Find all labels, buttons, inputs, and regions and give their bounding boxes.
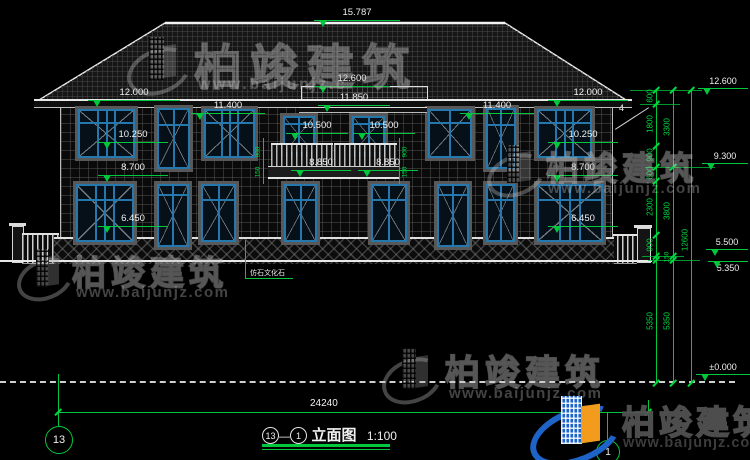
window <box>201 184 236 242</box>
elevation-value: 8.700 <box>571 162 595 173</box>
elevation-value: 15.787 <box>342 7 371 18</box>
window <box>371 184 407 242</box>
elevation-marker: 12.000 <box>548 87 628 101</box>
entry-door <box>437 184 469 247</box>
dim-extension <box>607 412 608 440</box>
elevation-marker: 5.500 <box>706 236 748 250</box>
elevation-drawing-canvas: 15.787 12.600 11.850 12.000 12.000 11.40… <box>0 0 750 460</box>
title-scale: 1:100 <box>367 429 397 443</box>
dim-value: 150 <box>664 252 671 263</box>
dim-chain-line <box>691 90 692 383</box>
dim-value: 5350 <box>646 312 655 330</box>
drawing-title: 13—1 立面图 1:100 <box>262 424 397 445</box>
elevation-value: 12.000 <box>573 87 602 98</box>
title-underline <box>262 444 390 447</box>
dim-value: 900 <box>646 148 655 161</box>
title-underline-thin <box>262 449 390 450</box>
grid-bubble-left: 13 <box>45 426 73 454</box>
callout-leader <box>245 278 293 279</box>
elevation-marker: 8.700 <box>98 162 168 176</box>
title-dash: — <box>279 431 290 443</box>
title-text: 立面图 <box>311 427 356 444</box>
elevation-marker: 8.850 <box>358 157 418 171</box>
elevation-marker: 10.250 <box>98 129 168 143</box>
elevation-marker: 10.500 <box>353 120 415 134</box>
elevation-marker: ±0.000 <box>696 361 750 375</box>
dim-value: 1800 <box>646 115 655 133</box>
window <box>284 184 317 242</box>
overall-dim-value: 24240 <box>310 398 338 409</box>
elevation-marker: 12.600 <box>698 75 748 89</box>
elevation-marker: 8.700 <box>548 162 618 176</box>
elevation-value: 10.250 <box>118 129 147 140</box>
grid-bubble-label: 13 <box>53 434 65 446</box>
dim-extension <box>58 374 59 428</box>
ground-line <box>0 260 652 262</box>
elevation-value: 12.600 <box>709 76 737 86</box>
elevation-marker: 12.000 <box>88 87 180 101</box>
elevation-marker: 8.850 <box>291 157 351 171</box>
elevation-marker: 15.787 <box>314 7 400 21</box>
elevation-marker: 10.250 <box>548 129 618 143</box>
watermark: 柏竣建筑 www.baijunjz.com <box>381 341 641 403</box>
elevation-value: 11.400 <box>214 100 242 111</box>
dim-value: 2300 <box>646 198 655 216</box>
grid-bubble-label: 1 <box>605 447 611 458</box>
elevation-marker: 11.850 <box>318 92 390 106</box>
dim-value: 150 <box>255 167 262 178</box>
elevation-value: 5.350 <box>717 263 740 273</box>
elevation-value: 10.500 <box>369 120 398 131</box>
elevation-marker: 11.400 <box>191 100 265 114</box>
elevation-value: 6.450 <box>571 213 595 224</box>
window <box>486 184 515 242</box>
elevation-value: 11.850 <box>340 92 368 103</box>
dim-value: 3300 <box>663 118 672 136</box>
dim-chain-line <box>673 90 674 383</box>
dim-value: 600 <box>646 89 655 102</box>
elevation-value: 8.850 <box>376 157 400 168</box>
grid-bubble-right: 1 <box>596 440 620 460</box>
dim-value: 3800 <box>663 202 672 220</box>
elevation-value: 10.500 <box>302 120 331 131</box>
window <box>486 108 516 169</box>
title-bubble-right: 1 <box>290 427 307 444</box>
elevation-marker: 10.500 <box>286 120 348 134</box>
dim-value: 12600 <box>681 229 690 251</box>
window <box>204 109 255 158</box>
elevation-value: 8.700 <box>121 162 145 173</box>
watermark-url: www.baijunjz.com <box>76 284 229 301</box>
dim-line <box>263 138 264 184</box>
elevation-marker: 11.400 <box>460 100 534 114</box>
balcony-lintel-ledge <box>299 107 427 113</box>
elevation-marker: 5.350 <box>708 261 748 275</box>
elevation-marker: 6.450 <box>98 213 168 227</box>
callout-text: 仿石文化石 <box>250 268 285 278</box>
roof-slope-label: 4 <box>619 103 624 113</box>
elevation-value: 9.300 <box>714 151 737 161</box>
dim-value: 900 <box>646 238 655 251</box>
elevation-value: ±0.000 <box>709 362 736 372</box>
brand-name: 柏竣建筑 <box>622 396 750 444</box>
dim-value: 600 <box>646 166 655 179</box>
elevation-value: 12.600 <box>337 73 366 84</box>
brand-url: www.baijunjz.com <box>623 435 750 451</box>
elevation-marker: 12.600 <box>314 73 390 87</box>
elevation-value: 10.250 <box>568 129 597 140</box>
elevation-value: 12.000 <box>119 87 148 98</box>
elevation-value: 6.450 <box>121 213 145 224</box>
dim-value: 150 <box>402 167 409 178</box>
dim-value: 900 <box>255 147 262 158</box>
callout-leader <box>245 240 246 279</box>
baijun-logo-icon <box>381 345 437 399</box>
brand-logo-color: 柏竣建筑 www.baijunjz.com <box>528 390 750 460</box>
watermark-brand: 柏竣建筑 <box>445 345 605 396</box>
elevation-value: 8.850 <box>309 157 333 168</box>
dim-chain-line <box>656 90 657 383</box>
title-bubble-left: 13 <box>262 427 279 444</box>
elevation-marker: 9.300 <box>702 150 748 164</box>
elevation-value: 5.500 <box>716 237 739 247</box>
datum-ground-line <box>0 381 735 383</box>
dim-value: 5350 <box>663 312 672 330</box>
elevation-marker: 6.450 <box>548 213 618 227</box>
elevation-value: 11.400 <box>483 100 511 111</box>
overall-dim-line <box>58 412 650 413</box>
dim-value: 900 <box>402 147 409 158</box>
watermark-url: www.baijunjz.com <box>449 385 602 402</box>
